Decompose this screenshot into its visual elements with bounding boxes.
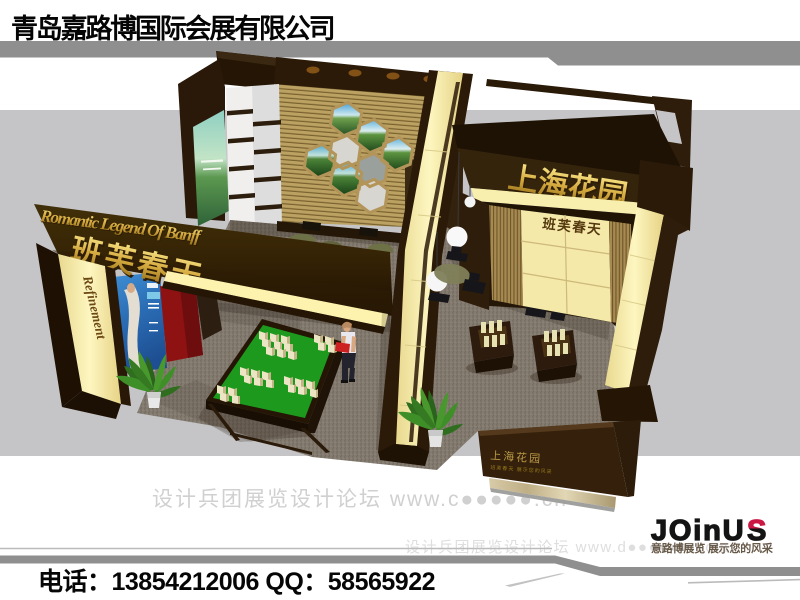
svg-text:意路博展览 展示您的风采: 意路博展览 展示您的风采 bbox=[651, 541, 774, 555]
svg-text:电话：13854212006 QQ：58565922: 电话：13854212006 QQ：58565922 bbox=[38, 568, 435, 596]
svg-text:青岛嘉路博国际会展有限公司: 青岛嘉路博国际会展有限公司 bbox=[11, 13, 334, 44]
